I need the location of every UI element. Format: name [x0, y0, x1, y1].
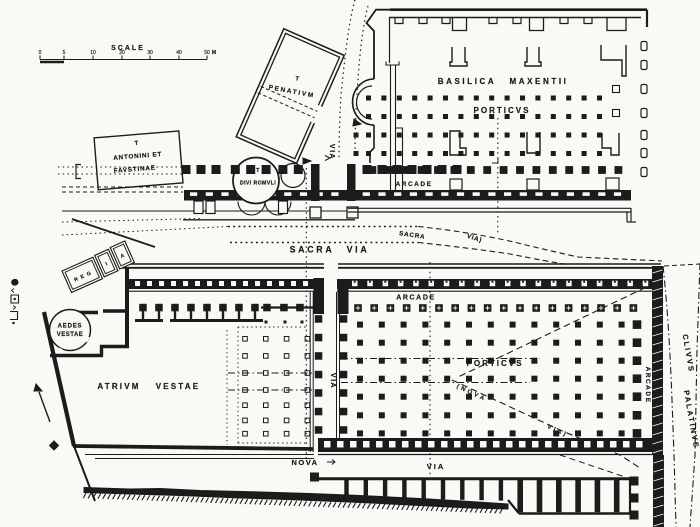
svg-text:50: 50 [204, 50, 210, 56]
svg-text:0: 0 [39, 50, 42, 56]
svg-text:T: T [134, 141, 139, 147]
svg-text:ARCADE: ARCADE [396, 181, 433, 188]
svg-text:VESTAE: VESTAE [156, 382, 201, 391]
svg-text:SACRA: SACRA [290, 245, 335, 255]
svg-text:BASILICA: BASILICA [438, 77, 497, 86]
svg-text:M: M [212, 50, 216, 56]
svg-text:ARCADE: ARCADE [396, 295, 436, 302]
svg-text:VIA: VIA [347, 245, 370, 255]
svg-text:VESTAE: VESTAE [57, 332, 84, 338]
svg-text:ARCADE: ARCADE [644, 367, 651, 404]
svg-text:ATRIVM: ATRIVM [97, 382, 140, 391]
svg-text:NOVA: NOVA [291, 458, 318, 467]
svg-text:MAXENTII: MAXENTII [509, 77, 568, 86]
svg-text:DIVI ROMVLI: DIVI ROMVLI [240, 181, 276, 187]
svg-text:30: 30 [147, 50, 153, 56]
svg-text:20: 20 [119, 50, 125, 56]
svg-text:PORTICVS: PORTICVS [467, 359, 524, 368]
svg-text:AEDES: AEDES [58, 324, 83, 330]
svg-text:5: 5 [63, 50, 66, 56]
svg-text:SCALE: SCALE [111, 45, 145, 52]
svg-text:PORTICVS: PORTICVS [474, 106, 531, 115]
svg-text:T: T [256, 168, 260, 174]
svg-text:VIA: VIA [329, 373, 336, 389]
svg-text:VIA: VIA [427, 462, 446, 471]
svg-text:10: 10 [90, 50, 96, 56]
svg-text:40: 40 [176, 50, 182, 56]
